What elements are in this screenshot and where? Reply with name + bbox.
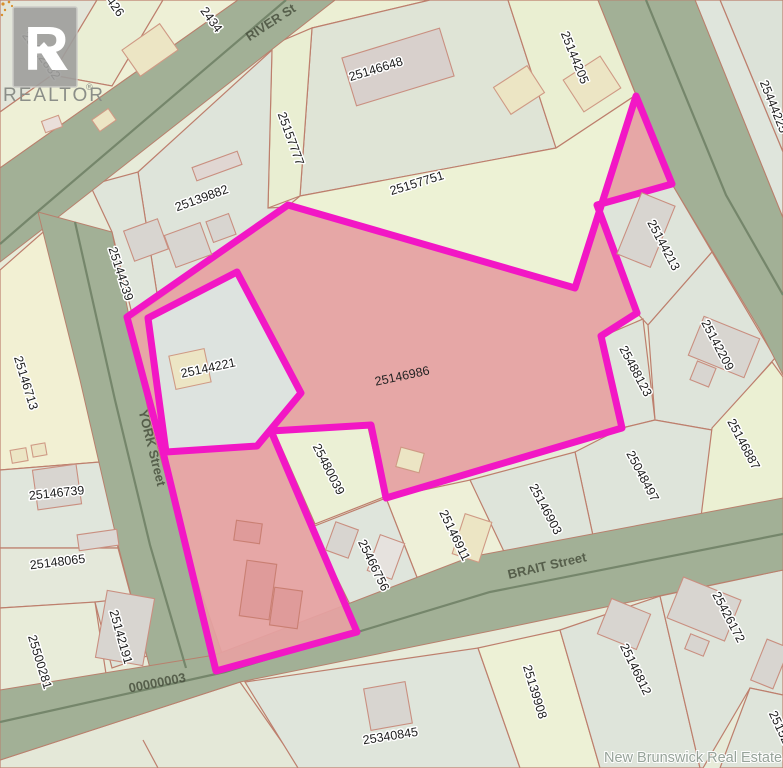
building — [10, 448, 28, 464]
building — [31, 443, 47, 457]
registered-trademark-icon: ® — [86, 82, 93, 92]
building — [269, 587, 302, 629]
building — [364, 682, 413, 731]
parcel-map: RIVER St YORK Street BRAIT Street 000000… — [0, 0, 783, 768]
attribution-watermark: New Brunswick Real Estate Board — [604, 750, 783, 766]
building — [234, 520, 263, 543]
